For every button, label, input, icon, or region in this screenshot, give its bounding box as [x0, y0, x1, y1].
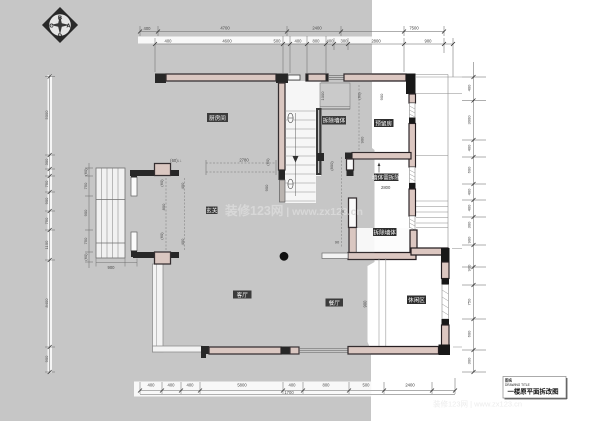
svg-text:拆除墙体: 拆除墙体 [374, 229, 397, 237]
svg-text:预留房: 预留房 [375, 120, 392, 128]
svg-text:400: 400 [467, 84, 472, 91]
svg-text:2400: 2400 [405, 383, 415, 388]
svg-text:900: 900 [467, 236, 472, 243]
svg-text:2800: 2800 [381, 185, 391, 190]
svg-text:400: 400 [467, 188, 472, 195]
svg-text:300: 300 [467, 221, 472, 228]
svg-text:900: 900 [425, 39, 433, 44]
svg-text:400: 400 [467, 144, 472, 151]
svg-text:图名: 图名 [505, 378, 513, 383]
svg-text:装修123网 | www.zx123.cn: 装修123网 | www.zx123.cn [433, 399, 522, 409]
svg-text:休闲区: 休闲区 [408, 296, 425, 304]
svg-text:2800: 2800 [371, 39, 381, 44]
svg-text:300: 300 [467, 357, 472, 364]
svg-text:600: 600 [467, 330, 472, 337]
svg-text:900: 900 [379, 93, 384, 100]
svg-text:750: 750 [467, 298, 472, 305]
svg-text:7500: 7500 [409, 26, 419, 31]
svg-text:3000: 3000 [467, 115, 472, 125]
svg-text:DRAWING TITLE: DRAWING TITLE [505, 383, 530, 387]
svg-text:900: 900 [467, 264, 472, 271]
svg-text:一楼原平面拆改图: 一楼原平面拆改图 [507, 387, 558, 396]
svg-text:墙体需拆除: 墙体需拆除 [372, 174, 400, 182]
svg-text:400: 400 [467, 204, 472, 211]
svg-text:600: 600 [467, 166, 472, 173]
